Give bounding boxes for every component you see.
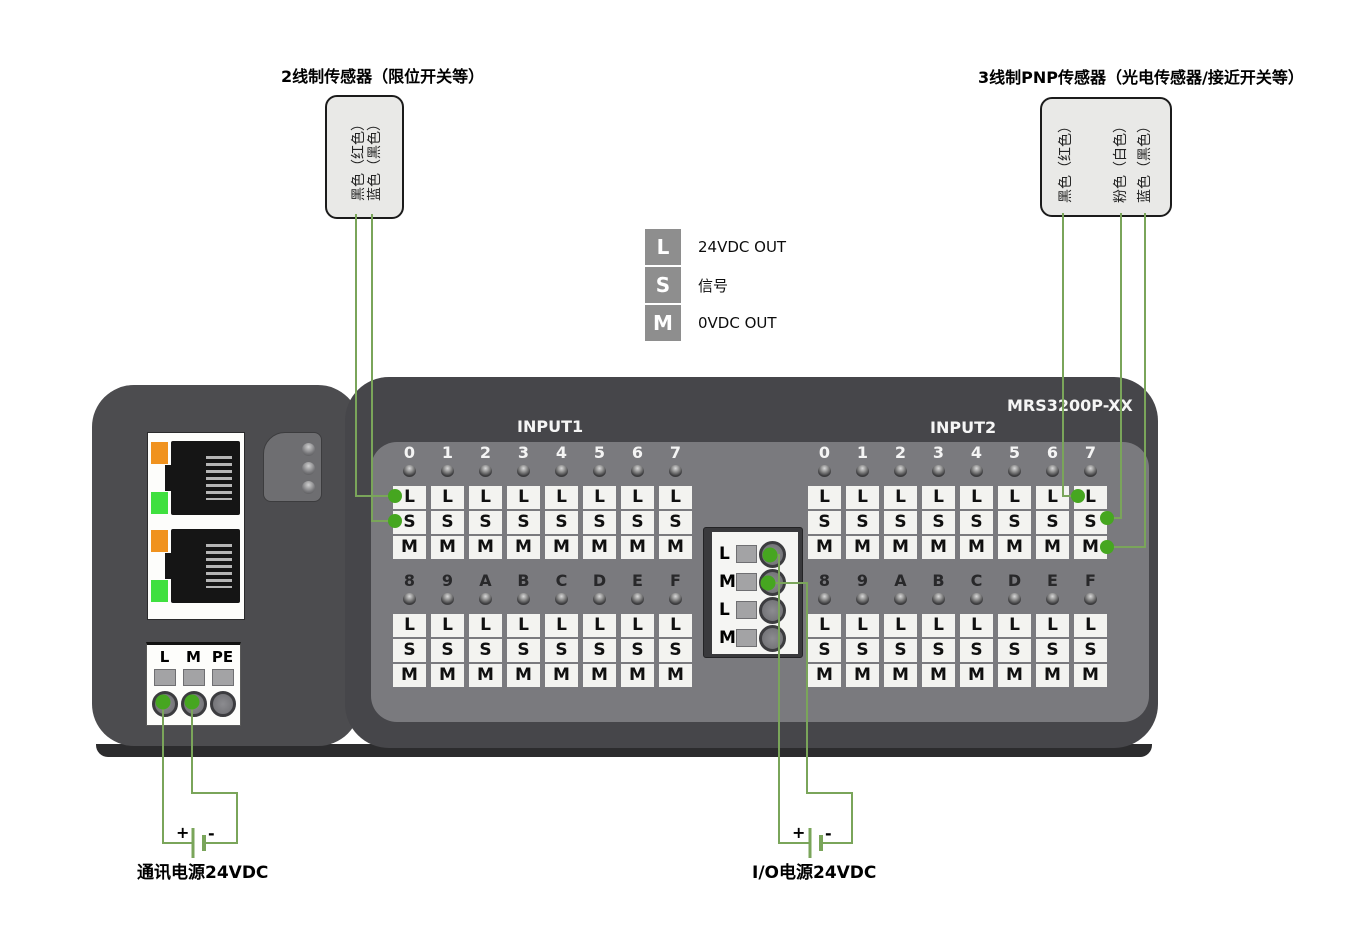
channel-label: A — [479, 572, 491, 590]
channel-led — [441, 465, 454, 477]
channel-led — [818, 465, 831, 477]
channel-7: 7LSM — [1074, 444, 1107, 561]
wire-hole — [759, 569, 786, 596]
terminal-L: L — [431, 614, 464, 637]
terminal-S: S — [846, 511, 879, 534]
terminal-L: L — [545, 486, 578, 509]
channel-led — [403, 593, 416, 605]
wiring-diagram: 2线制传感器（限位开关等） 3线制PNP传感器（光电传感器/接近开关等） 黑色（… — [0, 0, 1355, 934]
terminal-M: M — [960, 664, 993, 687]
terminal-S: S — [659, 639, 692, 662]
terminal-S: S — [583, 639, 616, 662]
io-power-row-L: L — [712, 596, 798, 624]
terminal-S: S — [922, 639, 955, 662]
channel-label: F — [670, 572, 681, 590]
two-wire-sensor-title: 2线制传感器（限位开关等） — [281, 63, 484, 87]
terminal-S: S — [621, 511, 654, 534]
terminal-M: M — [884, 664, 917, 687]
io-battery-minus: - — [825, 824, 832, 843]
terminal-S: S — [507, 511, 540, 534]
terminal-L: L — [1074, 614, 1107, 637]
channel-led — [1008, 593, 1021, 605]
terminal-S: S — [393, 639, 426, 662]
terminal-M: M — [922, 536, 955, 559]
terminal-L: L — [960, 486, 993, 509]
channel-led — [669, 465, 682, 477]
spring-clamp — [183, 669, 205, 686]
terminal-L: L — [1074, 486, 1107, 509]
terminal-M: M — [659, 664, 692, 687]
rj45-jack-icon — [171, 529, 240, 603]
terminal-S: S — [960, 639, 993, 662]
comm-power-terminal-block: LMPE — [146, 642, 241, 726]
legend-key: M — [645, 305, 681, 341]
channel-D: DLSM — [998, 572, 1031, 689]
terminal-S: S — [507, 639, 540, 662]
wire-hole — [181, 691, 207, 717]
io-battery-plus: + — [792, 823, 805, 842]
ethernet-port-2 — [148, 525, 244, 609]
input2-label: INPUT2 — [930, 418, 996, 437]
terminal-S: S — [1036, 639, 1069, 662]
channel-5: 5LSM — [583, 444, 616, 561]
channel-led — [441, 593, 454, 605]
terminal-M: M — [621, 664, 654, 687]
terminal-L: L — [507, 486, 540, 509]
terminal-L: L — [960, 614, 993, 637]
channel-led — [1046, 593, 1059, 605]
io-power-row-label: M — [719, 628, 734, 648]
io-power-terminal-panel: LMLM — [712, 532, 798, 654]
terminal-S: S — [469, 511, 502, 534]
channel-label: 1 — [857, 444, 868, 462]
rj45-jack-icon — [171, 441, 240, 515]
spring-clamp — [736, 601, 757, 619]
terminal-legend: L24VDC OUTS信号M0VDC OUT — [645, 229, 786, 343]
legend-label: 信号 — [698, 275, 728, 296]
terminal-M: M — [431, 536, 464, 559]
model-label: MRS3200P-XX — [1007, 396, 1125, 415]
terminal-S: S — [1074, 639, 1107, 662]
channel-B: BLSM — [507, 572, 540, 689]
channel-led — [970, 465, 983, 477]
channel-1: 1LSM — [846, 444, 879, 561]
terminal-L: L — [659, 614, 692, 637]
spring-clamp — [154, 669, 176, 686]
channel-A: ALSM — [469, 572, 502, 689]
channel-led — [894, 465, 907, 477]
channel-led — [1008, 465, 1021, 477]
terminal-L: L — [998, 614, 1031, 637]
terminal-L: L — [393, 486, 426, 509]
terminal-M: M — [583, 664, 616, 687]
wire-color-label: 粉色（白色） — [1112, 107, 1128, 211]
channel-4: 4LSM — [545, 444, 578, 561]
terminal-L: L — [621, 614, 654, 637]
channel-led — [517, 593, 530, 605]
terminal-S: S — [545, 639, 578, 662]
channel-C: CLSM — [960, 572, 993, 689]
input1-label: INPUT1 — [517, 417, 583, 436]
channel-5: 5LSM — [998, 444, 1031, 561]
terminal-S: S — [393, 511, 426, 534]
terminal-M: M — [469, 664, 502, 687]
activity-led-green — [151, 492, 168, 514]
input2-channels-8-F: 8LSM9LSMALSMBLSMCLSMDLSMELSMFLSM — [808, 572, 1107, 689]
terminal-S: S — [431, 639, 464, 662]
link-led-orange — [151, 530, 168, 552]
channel-led — [669, 593, 682, 605]
io-power-terminal-block: LMLM — [703, 527, 803, 658]
channel-D: DLSM — [583, 572, 616, 689]
terminal-M: M — [846, 536, 879, 559]
spring-clamp — [736, 545, 757, 563]
channel-label: E — [632, 572, 643, 590]
channel-led — [1084, 465, 1097, 477]
comm-power-col-L: L — [150, 647, 179, 725]
channel-label: C — [971, 572, 983, 590]
terminal-L: L — [808, 486, 841, 509]
status-led — [302, 481, 315, 494]
terminal-S: S — [922, 511, 955, 534]
channel-9: 9LSM — [431, 572, 464, 689]
terminal-L: L — [884, 614, 917, 637]
terminal-M: M — [621, 536, 654, 559]
wire-hole — [152, 691, 178, 717]
wire-hole — [759, 625, 786, 652]
channel-led — [555, 593, 568, 605]
wire-hole — [759, 541, 786, 568]
terminal-L: L — [846, 486, 879, 509]
channel-led — [894, 593, 907, 605]
wire-color-label: 蓝色（黑色） — [1136, 107, 1152, 211]
channel-A: ALSM — [884, 572, 917, 689]
terminal-M: M — [507, 536, 540, 559]
terminal-S: S — [884, 511, 917, 534]
terminal-S: S — [846, 639, 879, 662]
channel-label: 9 — [857, 572, 868, 590]
channel-label: A — [894, 572, 906, 590]
channel-led — [932, 593, 945, 605]
terminal-M: M — [998, 664, 1031, 687]
input2-channels-0-7: 0LSM1LSM2LSM3LSM4LSM5LSM6LSM7LSM — [808, 444, 1107, 561]
legend-label: 24VDC OUT — [698, 238, 786, 256]
channel-label: B — [517, 572, 529, 590]
comm-power-label: 通讯电源24VDC — [137, 858, 268, 883]
io-power-row-M: M — [712, 568, 798, 596]
terminal-S: S — [431, 511, 464, 534]
terminal-S: S — [659, 511, 692, 534]
terminal-L: L — [393, 614, 426, 637]
channel-led — [970, 593, 983, 605]
link-led-orange — [151, 442, 168, 464]
channel-led — [517, 465, 530, 477]
io-power-row-label: M — [719, 572, 734, 592]
channel-C: CLSM — [545, 572, 578, 689]
terminal-M: M — [808, 664, 841, 687]
channel-label: 0 — [404, 444, 415, 462]
terminal-L: L — [884, 486, 917, 509]
channel-label: E — [1047, 572, 1058, 590]
terminal-M: M — [846, 664, 879, 687]
channel-led — [1046, 465, 1059, 477]
terminal-S: S — [884, 639, 917, 662]
channel-label: 9 — [442, 572, 453, 590]
legend-label: 0VDC OUT — [698, 314, 777, 332]
channel-6: 6LSM — [621, 444, 654, 561]
comm-power-col-label: M — [186, 647, 201, 667]
input1-channels-8-F: 8LSM9LSMALSMBLSMCLSMDLSMELSMFLSM — [393, 572, 692, 689]
channel-B: BLSM — [922, 572, 955, 689]
spring-clamp — [736, 573, 757, 591]
io-power-row-M: M — [712, 624, 798, 652]
terminal-M: M — [1074, 664, 1107, 687]
channel-led — [555, 465, 568, 477]
channel-7: 7LSM — [659, 444, 692, 561]
two-wire-sensor-box: 黑色（红色）蓝色（黑色） — [325, 95, 404, 219]
terminal-L: L — [621, 486, 654, 509]
channel-F: FLSM — [659, 572, 692, 689]
terminal-L: L — [922, 614, 955, 637]
ethernet-panel — [147, 432, 245, 620]
legend-item: S信号 — [645, 267, 786, 303]
channel-label: C — [556, 572, 568, 590]
status-led — [302, 443, 315, 456]
terminal-M: M — [545, 536, 578, 559]
channel-led — [593, 465, 606, 477]
channel-6: 6LSM — [1036, 444, 1069, 561]
spring-clamp — [212, 669, 234, 686]
terminal-M: M — [393, 664, 426, 687]
terminal-S: S — [1074, 511, 1107, 534]
channel-2: 2LSM — [469, 444, 502, 561]
channel-label: 5 — [594, 444, 605, 462]
comm-power-col-M: M — [179, 647, 208, 725]
terminal-S: S — [1036, 511, 1069, 534]
channel-9: 9LSM — [846, 572, 879, 689]
terminal-M: M — [1074, 536, 1107, 559]
channel-label: 1 — [442, 444, 453, 462]
rj45-pins — [206, 544, 232, 588]
terminal-M: M — [998, 536, 1031, 559]
status-indicator-panel — [263, 432, 322, 502]
channel-3: 3LSM — [507, 444, 540, 561]
terminal-L: L — [659, 486, 692, 509]
legend-key: S — [645, 267, 681, 303]
channel-label: 2 — [480, 444, 491, 462]
channel-led — [1084, 593, 1097, 605]
channel-8: 8LSM — [808, 572, 841, 689]
terminal-L: L — [808, 614, 841, 637]
terminal-L: L — [469, 486, 502, 509]
channel-label: 0 — [819, 444, 830, 462]
io-power-label: I/O电源24VDC — [752, 858, 876, 883]
channel-led — [593, 593, 606, 605]
terminal-M: M — [922, 664, 955, 687]
wire-hole — [210, 691, 236, 717]
channel-F: FLSM — [1074, 572, 1107, 689]
channel-led — [631, 465, 644, 477]
terminal-L: L — [507, 614, 540, 637]
terminal-L: L — [583, 614, 616, 637]
channel-label: B — [932, 572, 944, 590]
terminal-S: S — [583, 511, 616, 534]
terminal-S: S — [621, 639, 654, 662]
terminal-L: L — [545, 614, 578, 637]
terminal-L: L — [469, 614, 502, 637]
channel-label: 3 — [518, 444, 529, 462]
channel-label: 3 — [933, 444, 944, 462]
channel-label: F — [1085, 572, 1096, 590]
channel-label: 4 — [556, 444, 567, 462]
wire-color-label: 蓝色（黑色） — [366, 105, 382, 209]
terminal-S: S — [808, 639, 841, 662]
channel-label: 2 — [895, 444, 906, 462]
three-wire-sensor-title: 3线制PNP传感器（光电传感器/接近开关等） — [978, 64, 1304, 88]
rj45-pins — [206, 456, 232, 500]
three-wire-sensor-box: 黑色（红色）粉色（白色）蓝色（黑色） — [1040, 97, 1172, 217]
terminal-M: M — [469, 536, 502, 559]
channel-led — [479, 465, 492, 477]
terminal-M: M — [393, 536, 426, 559]
channel-led — [479, 593, 492, 605]
channel-8: 8LSM — [393, 572, 426, 689]
channel-1: 1LSM — [431, 444, 464, 561]
terminal-M: M — [808, 536, 841, 559]
legend-item: L24VDC OUT — [645, 229, 786, 265]
channel-label: 6 — [1047, 444, 1058, 462]
terminal-L: L — [846, 614, 879, 637]
status-led — [302, 462, 315, 475]
legend-key: L — [645, 229, 681, 265]
comm-power-col-PE: PE — [208, 647, 237, 725]
channel-4: 4LSM — [960, 444, 993, 561]
channel-E: ELSM — [621, 572, 654, 689]
terminal-L: L — [431, 486, 464, 509]
terminal-M: M — [659, 536, 692, 559]
channel-led — [403, 465, 416, 477]
terminal-L: L — [922, 486, 955, 509]
io-power-row-L: L — [712, 540, 798, 568]
terminal-L: L — [583, 486, 616, 509]
channel-led — [818, 593, 831, 605]
channel-label: 6 — [632, 444, 643, 462]
terminal-S: S — [998, 639, 1031, 662]
comm-power-col-label: PE — [212, 647, 233, 667]
terminal-M: M — [431, 664, 464, 687]
io-power-row-label: L — [719, 544, 734, 564]
channel-label: 8 — [404, 572, 415, 590]
terminal-S: S — [960, 511, 993, 534]
channel-led — [856, 593, 869, 605]
channel-led — [631, 593, 644, 605]
channel-3: 3LSM — [922, 444, 955, 561]
io-power-row-label: L — [719, 600, 734, 620]
channel-led — [932, 465, 945, 477]
comm-power-col-label: L — [160, 647, 170, 667]
channel-label: 4 — [971, 444, 982, 462]
ethernet-port-1 — [148, 437, 244, 521]
input1-channels-0-7: 0LSM1LSM2LSM3LSM4LSM5LSM6LSM7LSM — [393, 444, 692, 561]
activity-led-green — [151, 580, 168, 602]
terminal-M: M — [884, 536, 917, 559]
channel-label: D — [1008, 572, 1021, 590]
wire-color-label: 黑色（红色） — [1057, 107, 1073, 211]
terminal-M: M — [545, 664, 578, 687]
terminal-L: L — [998, 486, 1031, 509]
channel-label: D — [593, 572, 606, 590]
comm-battery-minus: - — [208, 824, 215, 843]
terminal-S: S — [469, 639, 502, 662]
terminal-M: M — [583, 536, 616, 559]
terminal-M: M — [1036, 536, 1069, 559]
channel-2: 2LSM — [884, 444, 917, 561]
channel-label: 7 — [1085, 444, 1096, 462]
terminal-M: M — [507, 664, 540, 687]
comm-battery-plus: + — [176, 823, 189, 842]
terminal-S: S — [545, 511, 578, 534]
terminal-S: S — [808, 511, 841, 534]
channel-label: 7 — [670, 444, 681, 462]
channel-label: 5 — [1009, 444, 1020, 462]
wire-hole — [759, 597, 786, 624]
terminal-M: M — [960, 536, 993, 559]
spring-clamp — [736, 629, 757, 647]
channel-E: ELSM — [1036, 572, 1069, 689]
terminal-L: L — [1036, 486, 1069, 509]
legend-item: M0VDC OUT — [645, 305, 786, 341]
terminal-L: L — [1036, 614, 1069, 637]
channel-0: 0LSM — [808, 444, 841, 561]
channel-0: 0LSM — [393, 444, 426, 561]
terminal-M: M — [1036, 664, 1069, 687]
channel-label: 8 — [819, 572, 830, 590]
channel-led — [856, 465, 869, 477]
terminal-S: S — [998, 511, 1031, 534]
